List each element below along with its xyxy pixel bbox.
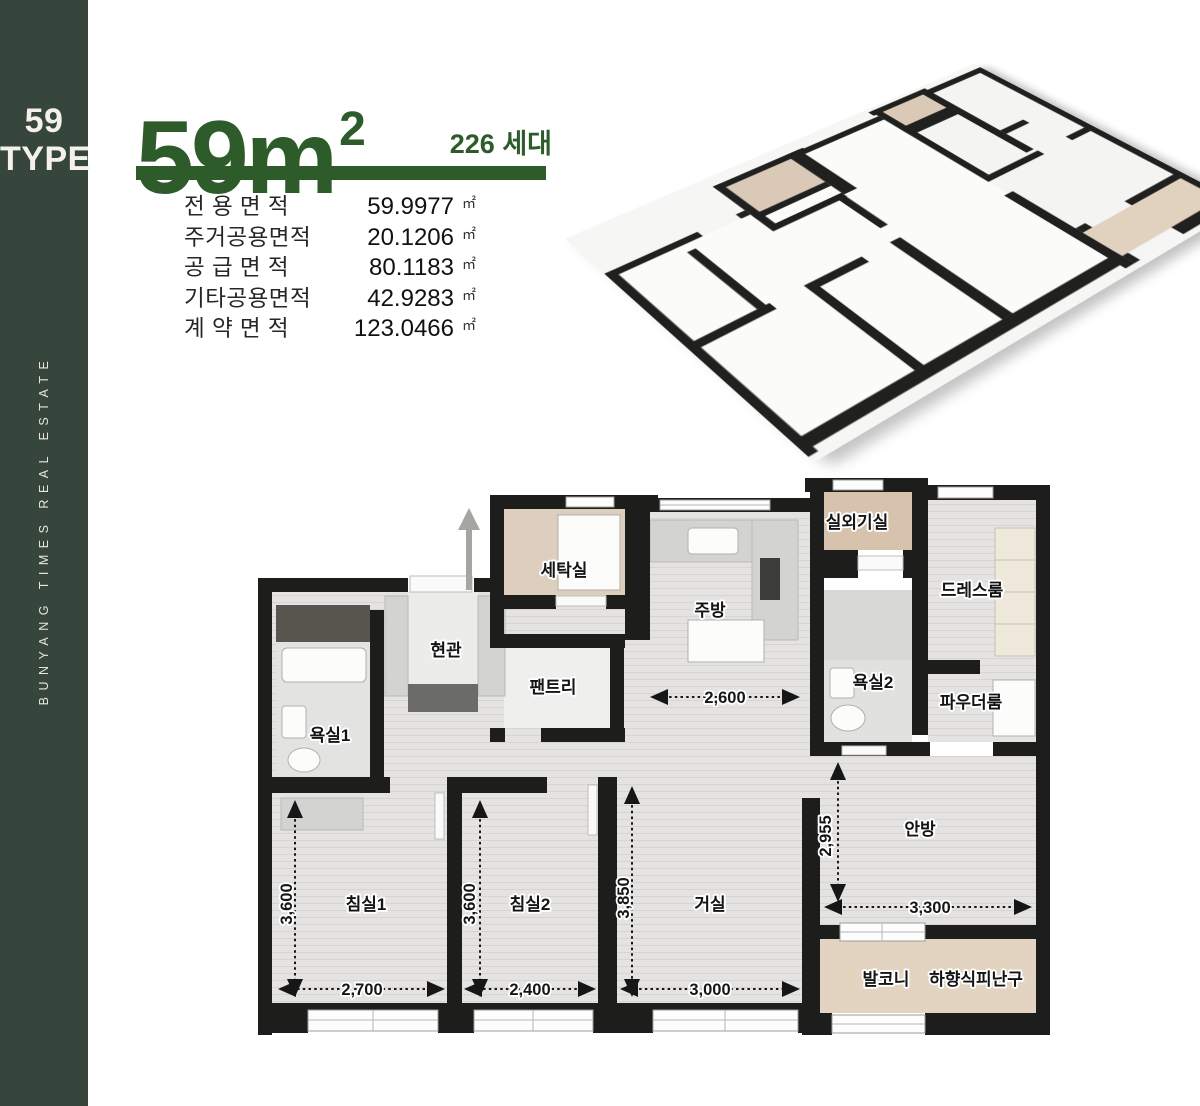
floorplan-2d: 2,600 2,955 3,300 3,600 2,700 3,600 2,40… bbox=[258, 470, 1050, 1046]
bathroom1-toilet bbox=[288, 748, 320, 772]
laundry-window bbox=[566, 497, 614, 507]
room-label-bedroom2: 침실2 bbox=[510, 894, 551, 914]
room-label-bathroom2: 욕실2 bbox=[853, 673, 894, 692]
master-door bbox=[842, 746, 886, 755]
row-value: 59.9977 bbox=[336, 193, 454, 221]
outdoor-unit-door bbox=[858, 556, 903, 570]
units-count: 226 세대 bbox=[340, 122, 552, 161]
room-label-bedroom1: 침실1 bbox=[346, 894, 387, 914]
row-unit: ㎡ bbox=[454, 285, 476, 305]
dim-bedroom1-depth: 3,600 bbox=[278, 883, 296, 924]
page: 59 TYPE BUNYANG TIMES REAL ESTATE 59m2 2… bbox=[0, 0, 1200, 1106]
isometric-floorplan bbox=[636, 0, 1186, 456]
bathroom1-sink bbox=[282, 706, 306, 738]
dressroom-window bbox=[938, 487, 993, 498]
type-word: TYPE bbox=[0, 140, 88, 178]
row-unit: ㎡ bbox=[454, 224, 476, 244]
room-label-entrance: 현관 bbox=[430, 641, 462, 660]
bathroom2-sink bbox=[830, 668, 854, 698]
dim-bedroom2-width: 2,400 bbox=[509, 981, 550, 999]
dim-bedroom1-width: 2,700 bbox=[341, 981, 382, 999]
kitchen-sink bbox=[688, 528, 738, 554]
room-label-master-room: 안방 bbox=[904, 820, 936, 839]
brand-vertical-text: BUNYANG TIMES REAL ESTATE bbox=[37, 355, 51, 706]
room-label-dress-room: 드레스룸 bbox=[941, 581, 1004, 600]
shoe-closet-left bbox=[385, 596, 408, 696]
laundry-door bbox=[556, 596, 606, 606]
area-table: 전 용 면 적 59.9977 ㎡ 주거공용면적 20.1206 ㎡ 공 급 면… bbox=[184, 189, 476, 342]
row-label: 기타공용면적 bbox=[184, 281, 336, 313]
bathtub bbox=[282, 648, 366, 682]
type-label: 59 TYPE bbox=[0, 102, 88, 178]
bathroom2-toilet bbox=[831, 705, 865, 731]
bathroom1-closet bbox=[276, 605, 370, 642]
dim-living-width: 3,000 bbox=[689, 981, 730, 999]
dim-master-depth: 2,955 bbox=[817, 815, 835, 856]
bedroom1-furniture bbox=[281, 798, 363, 830]
title-divider-bar bbox=[136, 166, 546, 180]
room-label-pantry: 팬트리 bbox=[530, 678, 577, 697]
row-unit: ㎡ bbox=[454, 193, 476, 213]
dim-master-width: 3,300 bbox=[909, 899, 950, 917]
row-label: 계 약 면 적 bbox=[184, 311, 336, 343]
row-label: 주거공용면적 bbox=[184, 220, 336, 252]
outdoor-unit-window bbox=[833, 480, 883, 490]
dim-living-depth: 3,850 bbox=[615, 877, 633, 918]
isometric-floorplan-drawing bbox=[565, 64, 1200, 462]
table-row: 전 용 면 적 59.9977 ㎡ bbox=[184, 189, 476, 220]
dim-kitchen-width: 2,600 bbox=[704, 689, 745, 707]
row-value: 123.0466 bbox=[336, 315, 454, 343]
sidebar: 59 TYPE BUNYANG TIMES REAL ESTATE bbox=[0, 0, 88, 1106]
row-label: 전 용 면 적 bbox=[184, 189, 336, 221]
row-label: 공 급 면 적 bbox=[184, 250, 336, 282]
row-value: 80.1183 bbox=[336, 254, 454, 282]
entrance-door bbox=[410, 576, 472, 592]
kitchen-island bbox=[688, 620, 764, 662]
room-label-living-room: 거실 bbox=[694, 895, 725, 914]
bedroom2-door bbox=[588, 785, 597, 835]
bedroom1-door bbox=[435, 793, 444, 839]
room-label-escape-hatch: 하향식피난구 bbox=[929, 969, 1023, 989]
entrance-floor bbox=[408, 592, 478, 684]
room-label-powder-room: 파우더룸 bbox=[940, 693, 1003, 712]
room-label-laundry: 세탁실 bbox=[541, 561, 588, 580]
room-label-outdoor-unit: 실외기실 bbox=[826, 513, 889, 532]
table-row: 주거공용면적 20.1206 ㎡ bbox=[184, 220, 476, 251]
room-label-kitchen: 주방 bbox=[694, 601, 726, 620]
row-unit: ㎡ bbox=[454, 315, 476, 335]
table-row: 기타공용면적 42.9283 ㎡ bbox=[184, 281, 476, 312]
table-row: 공 급 면 적 80.1183 ㎡ bbox=[184, 250, 476, 281]
dim-bedroom2-depth: 3,600 bbox=[461, 883, 479, 924]
row-value: 20.1206 bbox=[336, 224, 454, 252]
table-row: 계 약 면 적 123.0466 ㎡ bbox=[184, 311, 476, 342]
type-number: 59 bbox=[0, 102, 88, 140]
room-label-bathroom1: 욕실1 bbox=[310, 726, 351, 745]
entrance-doormat bbox=[408, 684, 478, 712]
kitchen-appliance bbox=[760, 558, 780, 600]
room-label-balcony: 발코니 bbox=[863, 970, 910, 989]
row-unit: ㎡ bbox=[454, 254, 476, 274]
row-value: 42.9283 bbox=[336, 285, 454, 313]
